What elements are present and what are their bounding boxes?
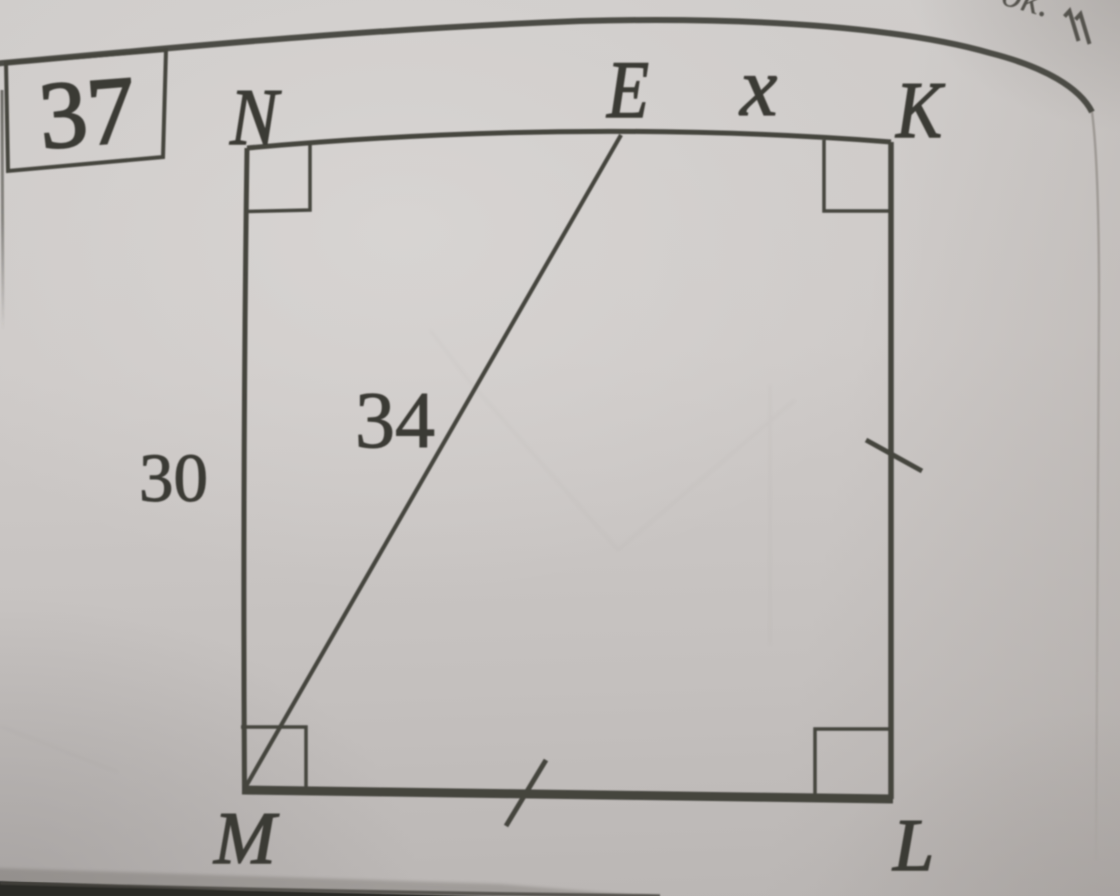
svg-text:L: L [892,805,934,887]
svg-text:M: M [213,798,280,880]
svg-text:x: x [738,41,777,134]
svg-text:ок.: ок. [998,0,1057,26]
svg-text:37: 37 [35,55,139,169]
svg-text:N: N [229,74,282,162]
svg-text:30: 30 [139,440,208,516]
svg-text:K: K [895,67,945,155]
svg-text:E: E [606,44,649,135]
svg-text:34: 34 [355,377,435,465]
